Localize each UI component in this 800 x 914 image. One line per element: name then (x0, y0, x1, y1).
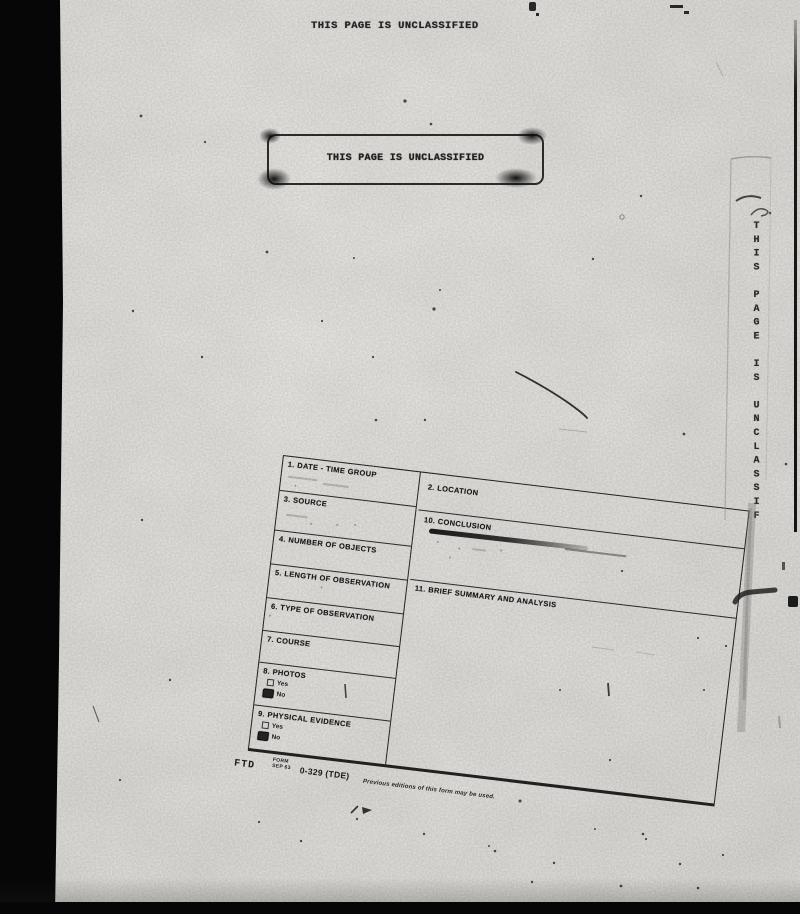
pencil-smudge (323, 483, 349, 488)
edge-blob (788, 596, 798, 607)
pencil-smudge (286, 514, 308, 519)
classification-stamp: THIS PAGE IS UNCLASSIFIED (267, 134, 544, 185)
edge-blob (782, 562, 785, 570)
form-table-border: 1. DATE - TIME GROUP 3. SOURCE 4. NUMBER… (248, 455, 750, 807)
photos-yes-checkbox (267, 679, 275, 687)
yes-label: Yes (271, 723, 283, 731)
pencil-smudge (449, 556, 451, 558)
form-footer-note: Previous editions of this form may be us… (363, 779, 496, 801)
pen-scribble (362, 807, 372, 814)
faint-dash (559, 429, 587, 432)
pencil-smudge (436, 541, 438, 543)
scanned-document-page: THIS PAGE IS UNCLASSIFIED THIS PAGE IS U… (0, 0, 800, 914)
pencil-smudge (354, 524, 356, 526)
ghost-stamp-outline (725, 159, 731, 520)
stamp-ink-blob (259, 128, 281, 144)
classification-side-vertical: THIS PAGE IS UNCLASSIF (751, 221, 762, 525)
scan-edge-bottom (0, 902, 800, 914)
pencil-smudge (310, 523, 312, 525)
stamp-ink-blob (495, 168, 537, 188)
yes-label: Yes (277, 680, 289, 688)
classification-stamp-text: THIS PAGE IS UNCLASSIFIED (269, 153, 542, 164)
pencil-smudge (287, 476, 317, 482)
scan-edge-left (0, 0, 63, 914)
scratch (93, 706, 99, 722)
ink-dot (356, 818, 358, 820)
pencil-smudge (472, 548, 486, 552)
physical-evidence-no-checkbox (257, 731, 269, 741)
pencil-smudge (294, 485, 296, 487)
report-form: 1. DATE - TIME GROUP 3. SOURCE 4. NUMBER… (248, 455, 750, 807)
ink-dot (769, 212, 772, 215)
ghost-stamp-outline (766, 158, 771, 480)
form-footer-form-date: SEP 63 (272, 763, 291, 771)
no-label: No (276, 691, 285, 699)
ghost-stamp-outline (731, 157, 771, 159)
form-footer-org: FTD (233, 758, 255, 771)
conclusion-redaction-smudge (564, 548, 626, 557)
pen-scribble (351, 806, 358, 813)
pencil-smudge (336, 524, 338, 526)
bracket-foot-mark (735, 590, 775, 602)
classification-header: THIS PAGE IS UNCLASSIFIED (311, 20, 479, 32)
field-label: 1. DATE - TIME GROUP (282, 456, 419, 484)
scan-edge-right (794, 20, 797, 532)
photos-no-checkbox (262, 688, 274, 698)
scan-bottom-shade (0, 878, 800, 902)
form-footer-number: 0-329 (TDE) (299, 765, 350, 781)
pen-squiggle (751, 209, 768, 216)
faint-tick (779, 716, 780, 728)
edge-dashes (529, 2, 689, 16)
pencil-smudge (320, 586, 322, 588)
physical-evidence-yes-checkbox (261, 721, 269, 729)
pencil-smudge (269, 614, 271, 616)
form-footer-edition: FORM SEP 63 (272, 758, 292, 771)
pen-stroke (516, 372, 587, 418)
pen-squiggle (736, 196, 761, 201)
stamp-ink-blob (257, 168, 291, 190)
field-brief-summary: 11. BRIEF SUMMARY AND ANALYSIS (387, 580, 735, 808)
pencil-smudge (500, 549, 502, 551)
pencil-smudge (458, 547, 460, 549)
scratch (716, 62, 723, 76)
ink-ring (620, 215, 624, 219)
no-label: No (271, 734, 280, 742)
stamp-ink-blob (517, 127, 547, 145)
form-right-column: 2. LOCATION 10. CONCLUSION 11. BRIEF SUM… (388, 473, 749, 804)
